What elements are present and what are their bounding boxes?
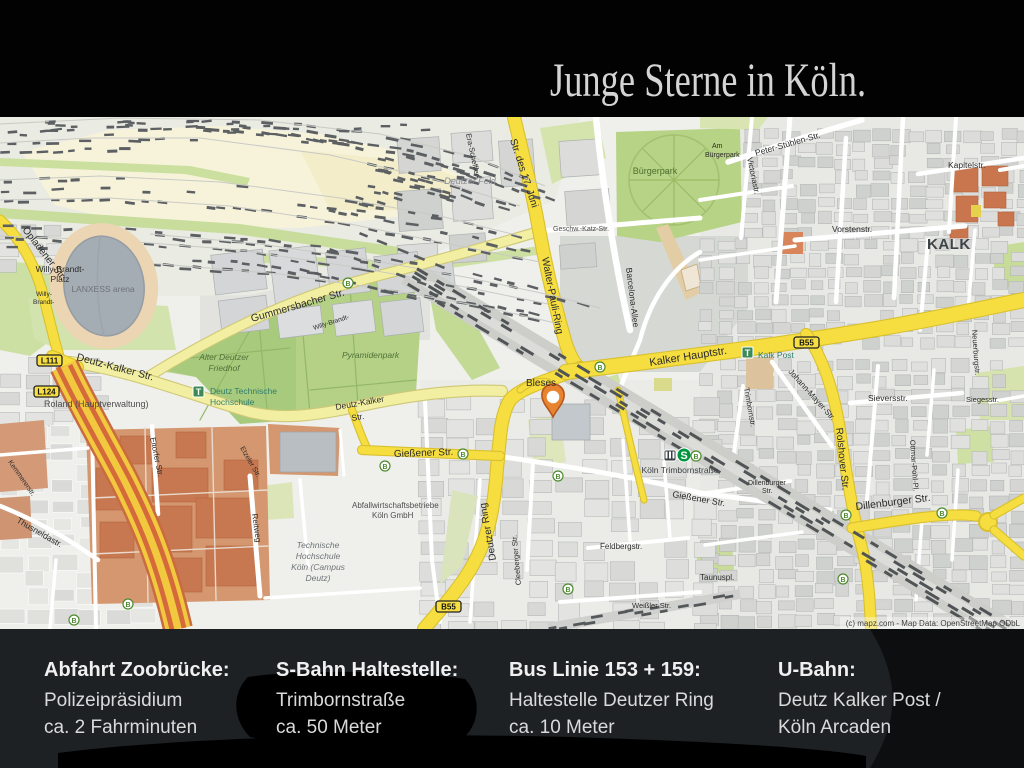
svg-text:B55: B55	[441, 603, 456, 612]
svg-text:LANXESS arena: LANXESS arena	[71, 284, 135, 294]
svg-text:KALK: KALK	[927, 236, 971, 253]
svg-text:B: B	[840, 577, 845, 584]
svg-text:Köln (Campus: Köln (Campus	[291, 562, 346, 572]
svg-text:Dillenburger: Dillenburger	[748, 480, 786, 487]
svg-text:B55: B55	[799, 339, 814, 348]
svg-text:Feldbergstr.: Feldbergstr.	[600, 542, 642, 551]
svg-text:Hochschule: Hochschule	[210, 397, 255, 407]
svg-text:B: B	[460, 452, 465, 459]
svg-text:Kalk Post: Kalk Post	[758, 350, 795, 360]
svg-text:Köln Trimbornstraße: Köln Trimbornstraße	[642, 465, 719, 475]
svg-text:L111: L111	[41, 357, 59, 366]
svg-text:Platz: Platz	[51, 274, 70, 284]
svg-text:Vorstenstr.: Vorstenstr.	[832, 224, 872, 234]
svg-text:Kapitelstr.: Kapitelstr.	[948, 160, 985, 170]
svg-text:Alter Deutzer: Alter Deutzer	[198, 352, 250, 362]
svg-text:L124: L124	[37, 388, 56, 397]
svg-text:Weißler Str.: Weißler Str.	[632, 601, 671, 610]
svg-text:Brandt-: Brandt-	[33, 299, 54, 306]
svg-text:Taunuspl.: Taunuspl.	[700, 573, 734, 582]
svg-text:B: B	[565, 587, 570, 594]
svg-text:T: T	[196, 387, 202, 397]
svg-text:Köln GmbH: Köln GmbH	[372, 511, 414, 520]
svg-text:B: B	[843, 513, 848, 520]
svg-text:Sieversstr.: Sieversstr.	[868, 393, 908, 403]
svg-text:Str.: Str.	[762, 488, 773, 495]
svg-text:Bürgerpark: Bürgerpark	[705, 152, 740, 159]
svg-text:B: B	[555, 474, 560, 481]
svg-text:Deutzer Feld: Deutzer Feld	[444, 176, 497, 186]
svg-text:Bleses: Bleses	[526, 378, 556, 389]
svg-text:B: B	[125, 602, 130, 609]
svg-text:(c) mapz.com - Map Data: OpenS: (c) mapz.com - Map Data: OpenStreetMap O…	[846, 619, 1021, 628]
svg-text:Willy-: Willy-	[36, 291, 52, 298]
svg-text:Abfallwirtschaftsbetriebe: Abfallwirtschaftsbetriebe	[352, 501, 439, 510]
svg-text:Bürgerpark: Bürgerpark	[633, 166, 678, 176]
svg-text:B: B	[939, 511, 944, 518]
svg-text:Gießener Str.: Gießener Str.	[394, 447, 454, 460]
svg-text:Siegesstr.: Siegesstr.	[966, 395, 999, 404]
svg-text:Friedhof: Friedhof	[208, 363, 241, 373]
svg-text:Pyramidenpark: Pyramidenpark	[342, 350, 400, 360]
svg-text:Am: Am	[712, 143, 723, 150]
svg-text:S: S	[680, 450, 687, 462]
svg-text:B: B	[71, 618, 76, 625]
svg-text:Deutz): Deutz)	[305, 573, 330, 583]
svg-text:B: B	[693, 454, 698, 461]
svg-text:T: T	[745, 348, 751, 358]
svg-text:B: B	[382, 464, 387, 471]
svg-text:Deutz Technische: Deutz Technische	[210, 386, 277, 396]
svg-text:Technische: Technische	[297, 540, 340, 550]
svg-text:B: B	[597, 365, 602, 372]
svg-text:Geschw.-Katz-Str.: Geschw.-Katz-Str.	[553, 226, 609, 233]
svg-text:Roland (Hauptverwaltung): Roland (Hauptverwaltung)	[44, 399, 149, 409]
svg-text:B: B	[345, 281, 350, 288]
svg-text:Willy-Brandt-: Willy-Brandt-	[36, 264, 85, 274]
svg-text:Hochschule: Hochschule	[296, 551, 341, 561]
